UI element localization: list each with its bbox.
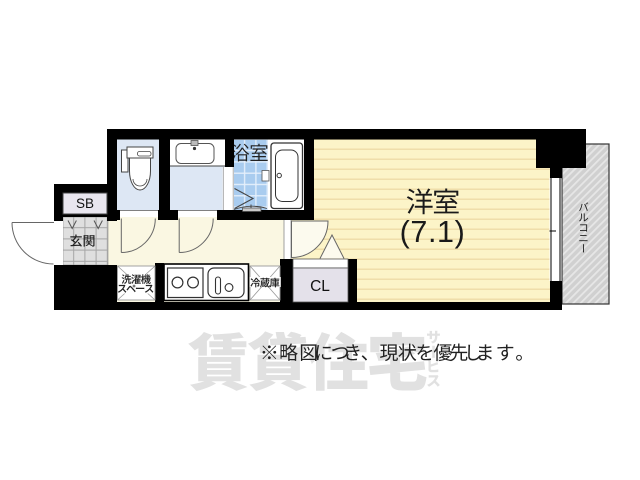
svg-text:CL: CL [310, 278, 330, 295]
svg-text:SB: SB [76, 196, 94, 211]
svg-text:(7.1): (7.1) [400, 215, 466, 249]
